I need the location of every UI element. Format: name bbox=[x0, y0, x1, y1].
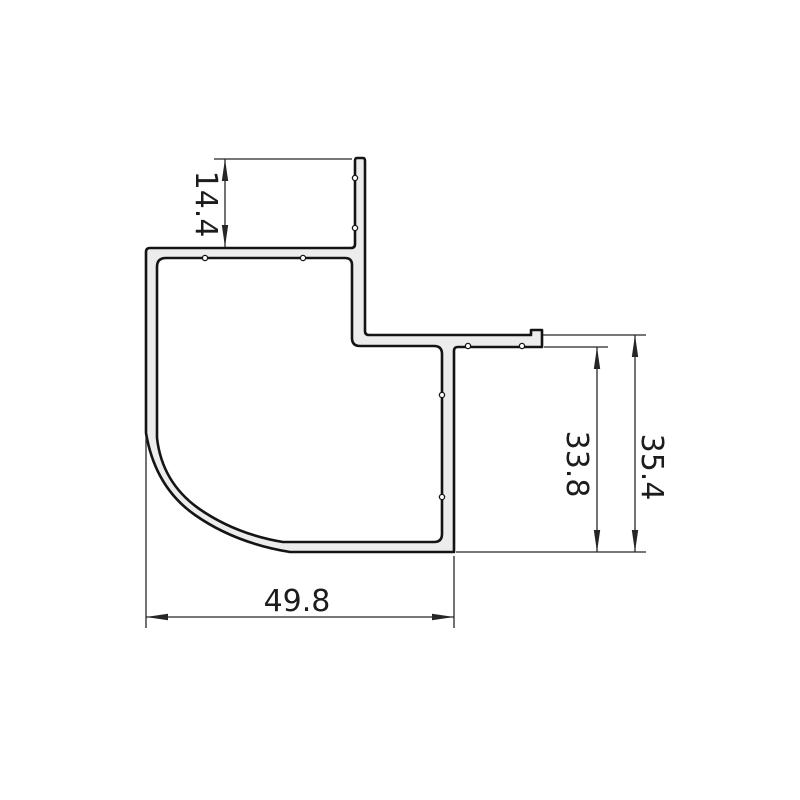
id-notch bbox=[352, 175, 357, 180]
drawing-page: 14.4 33.8 35.4 49.8 bbox=[0, 0, 800, 800]
id-notch bbox=[202, 255, 207, 260]
profile-drawing: 14.4 33.8 35.4 49.8 bbox=[0, 0, 800, 800]
dimension-label: 35.4 bbox=[634, 434, 669, 501]
id-notch bbox=[439, 494, 444, 499]
dimension-label: 49.8 bbox=[264, 584, 331, 619]
dimension-stem-height: 14.4 bbox=[188, 159, 352, 247]
arrowhead-down bbox=[594, 530, 600, 552]
id-notch bbox=[439, 392, 444, 397]
arrowhead-up bbox=[594, 347, 600, 369]
arrowhead-down bbox=[632, 530, 638, 552]
dimension-step-inner-height: 33.8 bbox=[544, 347, 608, 552]
id-notch bbox=[352, 225, 357, 230]
dimension-label: 33.8 bbox=[559, 431, 594, 498]
id-notch bbox=[519, 343, 524, 348]
arrowhead-left bbox=[146, 614, 168, 620]
id-notch bbox=[465, 343, 470, 348]
id-notch bbox=[300, 255, 305, 260]
dimension-body-width: 49.8 bbox=[146, 437, 454, 628]
arrowhead-right bbox=[432, 614, 454, 620]
arrowhead-up bbox=[632, 335, 638, 357]
dimension-label: 14.4 bbox=[188, 171, 223, 238]
